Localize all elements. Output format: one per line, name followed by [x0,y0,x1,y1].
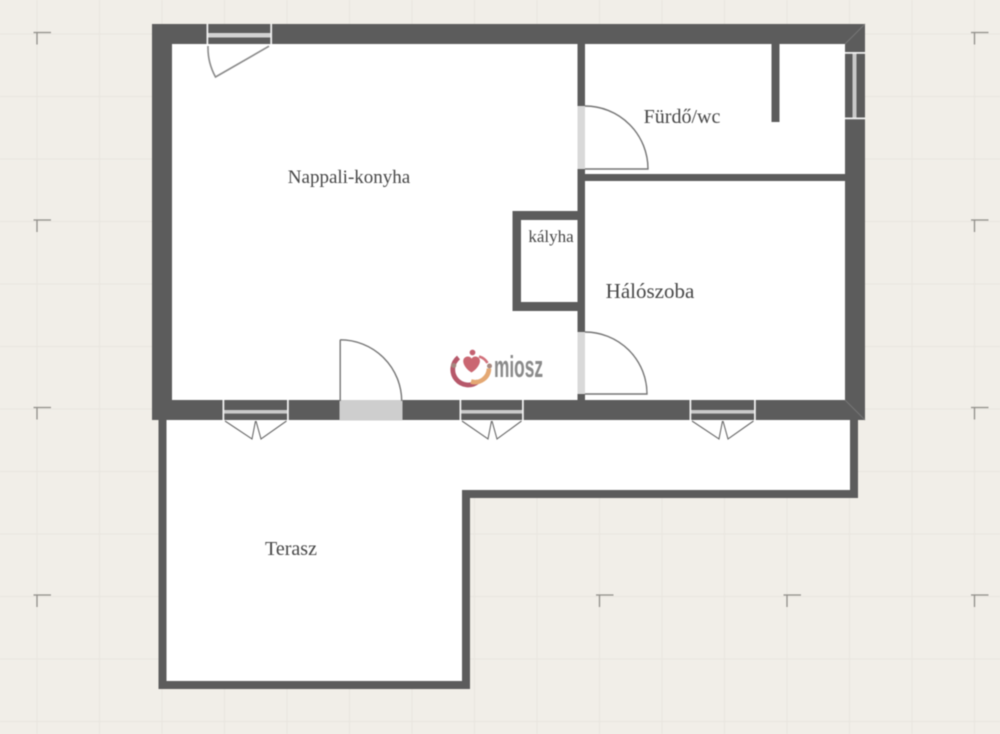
svg-text:Fürdő/wc: Fürdő/wc [644,106,721,128]
svg-text:Hálószoba: Hálószoba [606,279,695,303]
svg-text:Terasz: Terasz [265,538,317,560]
svg-text:miosz: miosz [494,349,543,384]
svg-text:Nappali-konyha: Nappali-konyha [288,167,411,188]
svg-text:kályha: kályha [528,227,574,246]
